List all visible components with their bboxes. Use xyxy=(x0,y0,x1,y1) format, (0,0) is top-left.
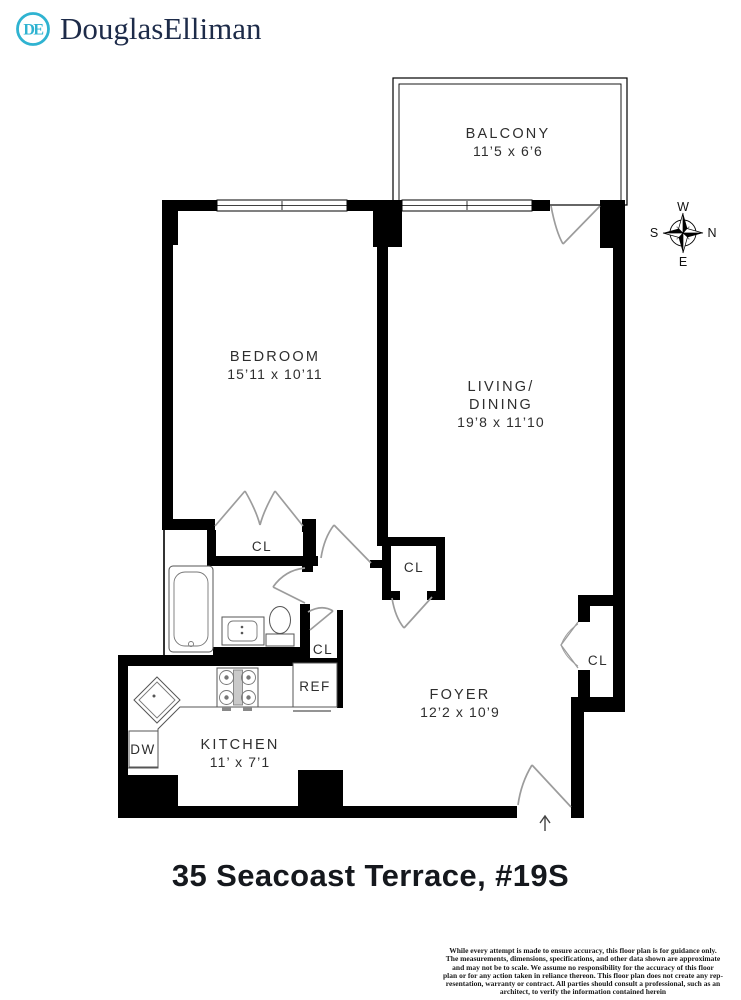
compass-south-label: S xyxy=(650,226,658,240)
room-label-foyer: FOYER xyxy=(430,687,491,703)
disclaimer: While every attempt is made to ensure ac… xyxy=(429,947,737,997)
room-dims-living: 19’8 x 11’10 xyxy=(457,414,545,430)
room-label-bedroom: BEDROOM xyxy=(230,349,320,365)
entry-arrow xyxy=(540,816,550,831)
foyer-closet-door xyxy=(392,597,432,628)
window-bedroom xyxy=(217,200,347,211)
page: { "brand": { "name": "DouglasElliman", "… xyxy=(0,0,741,1000)
compass: W N E S xyxy=(650,200,717,269)
disclaimer-line: architect, to verify the information con… xyxy=(429,988,737,996)
right-closet-bifold-doors xyxy=(561,622,578,668)
toilet xyxy=(266,607,294,647)
room-dims-bedroom: 15’11 x 10’11 xyxy=(227,366,323,382)
bedroom-door xyxy=(321,525,371,563)
room-label-living-line2: DINING xyxy=(469,397,533,413)
room-dims-kitchen: 11’ x 7’1 xyxy=(210,754,271,770)
stove xyxy=(217,668,258,711)
compass-west-label: W xyxy=(677,200,689,214)
entry-door xyxy=(518,765,571,807)
bedroom-closet-doors xyxy=(215,491,303,526)
room-label-kitchen: KITCHEN xyxy=(200,737,279,753)
room-label-living-line1: LIVING/ xyxy=(468,379,535,395)
closet-label-right: CL xyxy=(588,653,608,668)
walls-layer xyxy=(118,200,625,818)
balcony-door xyxy=(551,206,600,244)
room-label-balcony: BALCONY xyxy=(466,126,551,142)
dishwasher-label: DW xyxy=(130,742,156,757)
room-dims-foyer: 12’2 x 10’9 xyxy=(420,704,500,720)
closet-label-hall: CL xyxy=(313,642,333,657)
hall-closet-door xyxy=(308,608,333,630)
kitchen-sink xyxy=(134,677,180,723)
sink-vanity xyxy=(222,617,264,645)
bathroom-door xyxy=(273,568,305,603)
compass-north-label: N xyxy=(707,226,716,240)
bathtub xyxy=(169,566,213,652)
page-title: 35 Seacoast Terrace, #19S xyxy=(0,858,741,894)
window-living xyxy=(402,200,532,211)
floor-plan: W N E S BALCONY 11’5 x 6’6 BEDROOM 15’11… xyxy=(0,0,741,1000)
refrigerator-label: REF xyxy=(299,679,331,694)
room-dims-balcony: 11’5 x 6’6 xyxy=(473,143,543,159)
compass-east-label: E xyxy=(679,255,687,269)
closet-label-foyer-center: CL xyxy=(404,560,424,575)
closet-label-bedroom: CL xyxy=(252,539,272,554)
